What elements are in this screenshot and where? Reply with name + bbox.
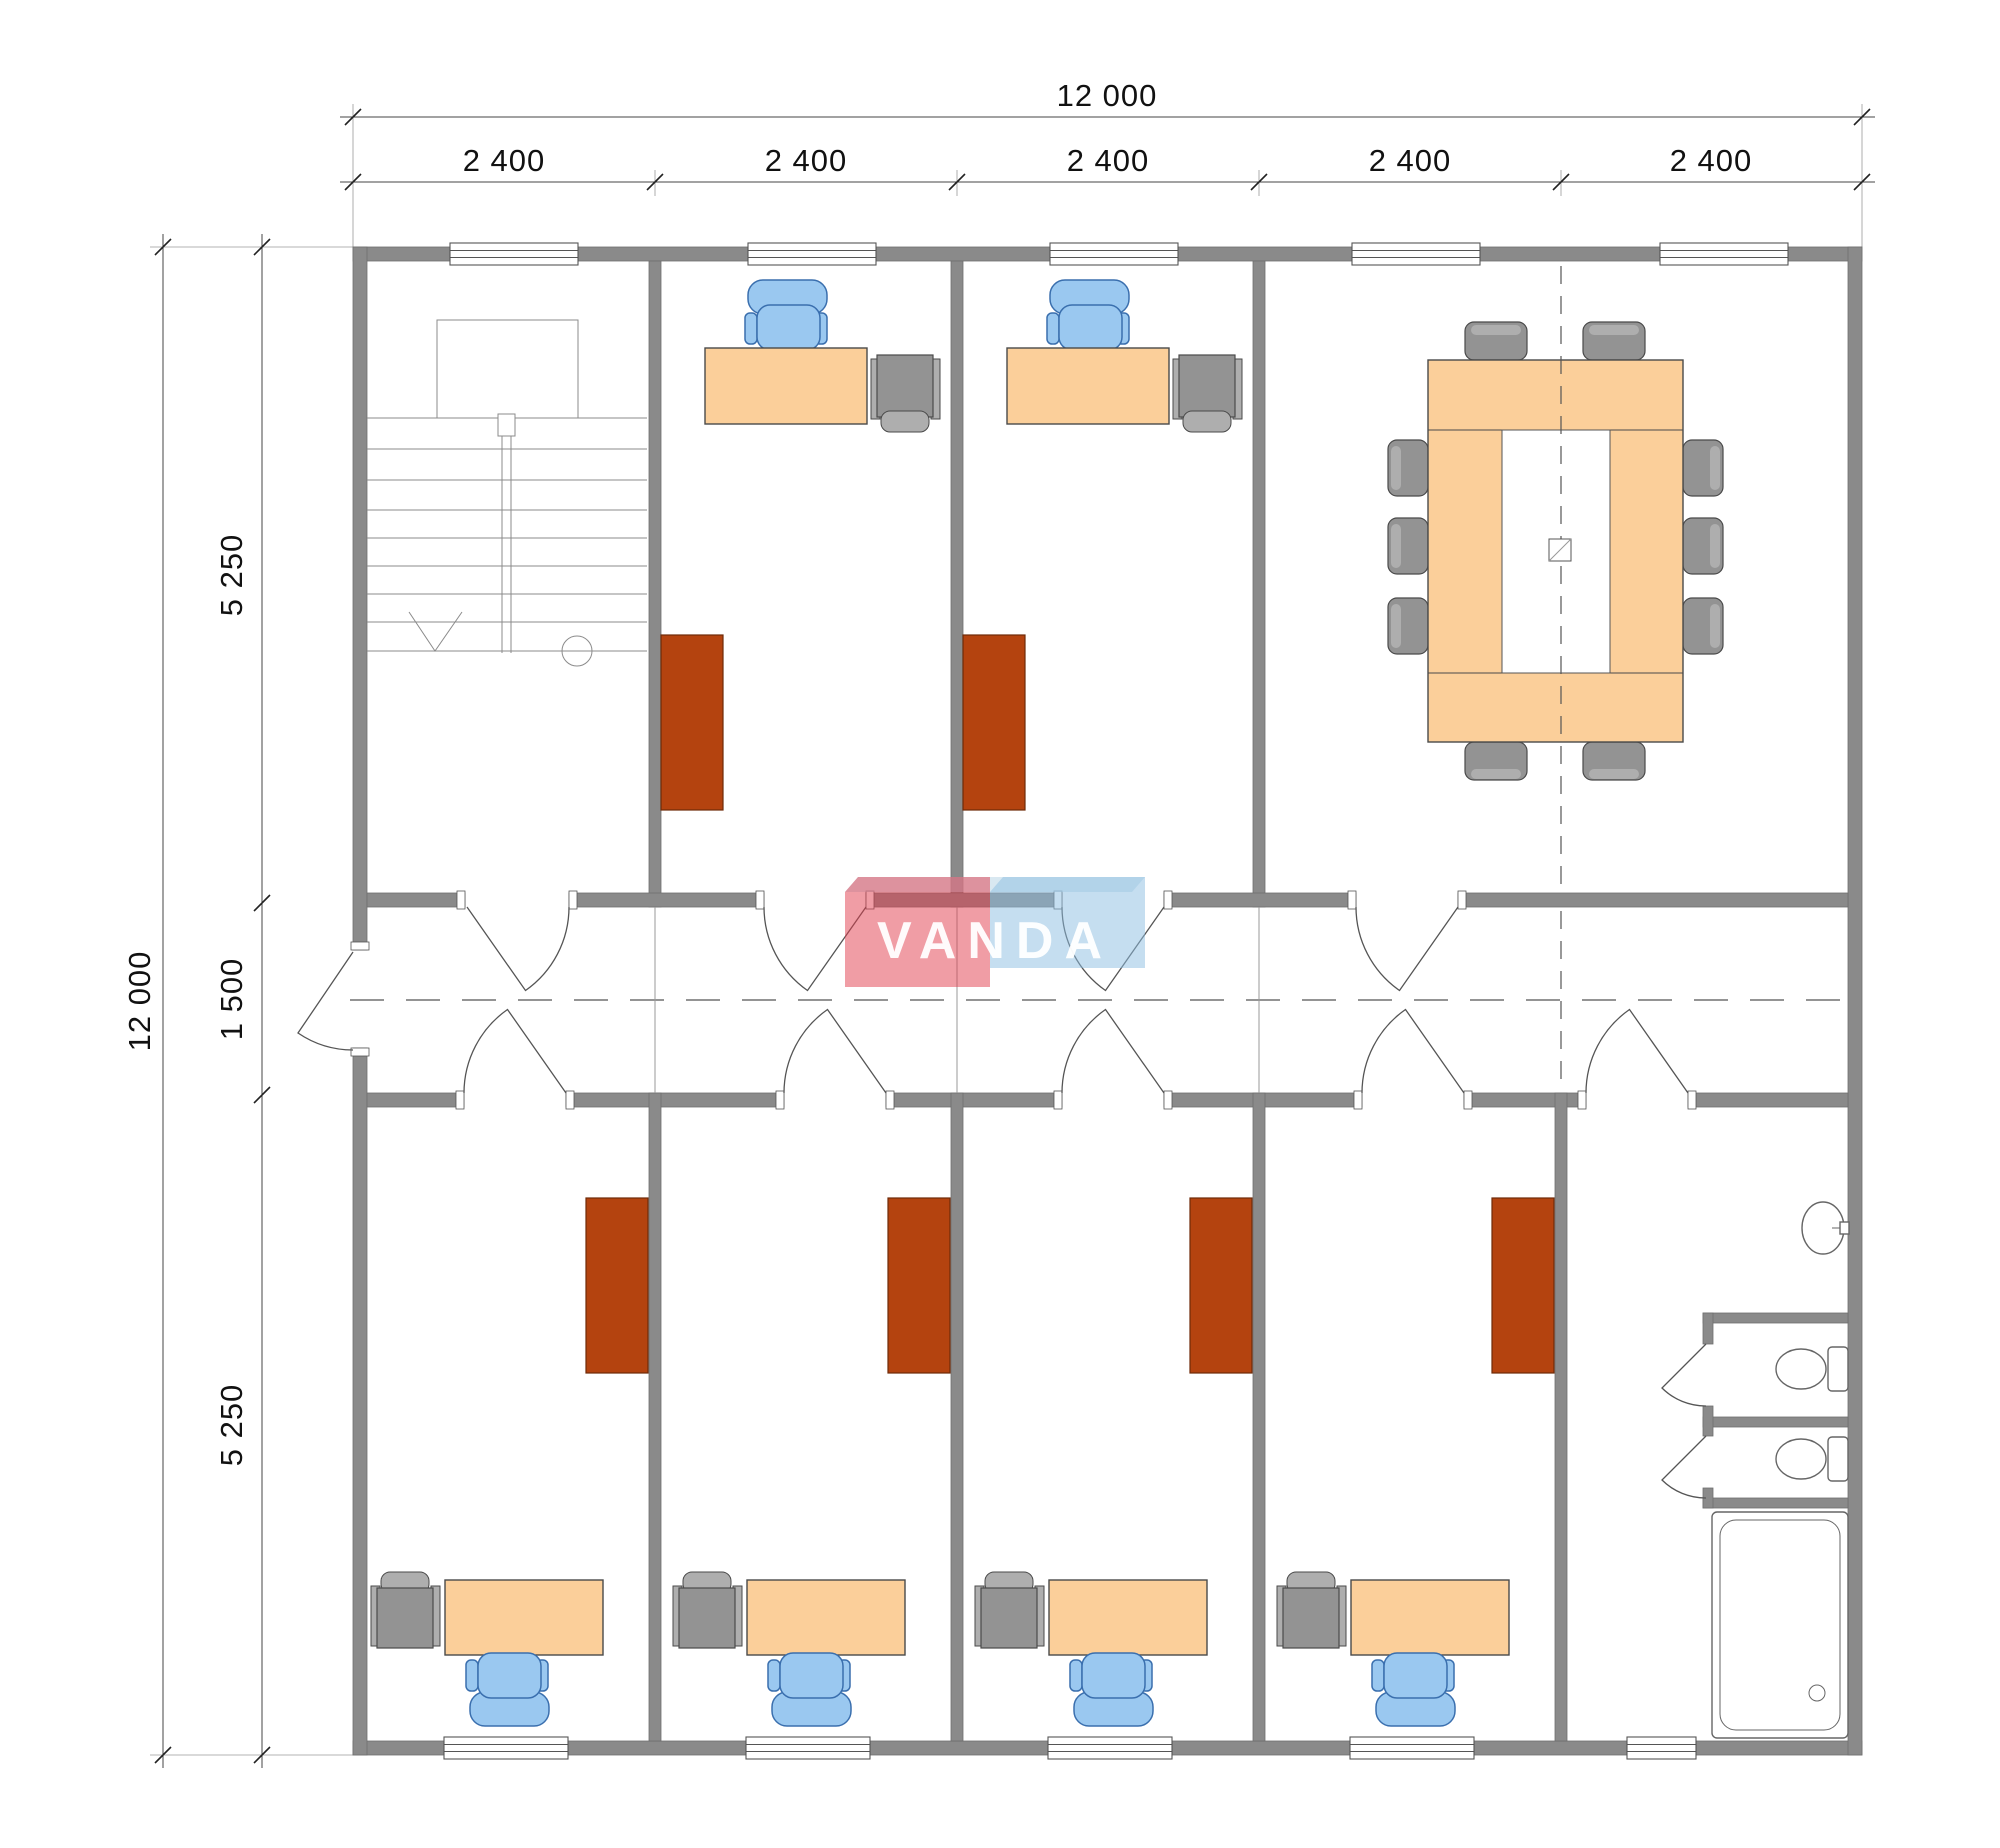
cabinet (963, 635, 1025, 810)
window-top-5 (1660, 243, 1788, 265)
door-office-bottom-4 (1354, 1010, 1472, 1110)
door-wc-stall-1 (1662, 1344, 1706, 1406)
floor-plan-page: 12 000 2 400 2 400 2 400 2 400 2 400 12 … (0, 0, 2000, 1848)
window-bottom-3 (1048, 1737, 1172, 1759)
dim-bay-1: 2 400 (463, 143, 546, 178)
stair-newel (498, 414, 515, 436)
shower-tray (1712, 1512, 1848, 1738)
toilet-2 (1776, 1437, 1848, 1481)
dim-bay-4: 2 400 (1369, 143, 1452, 178)
cabinet (888, 1198, 950, 1373)
workstation (371, 1572, 603, 1726)
window-top-1 (450, 243, 578, 265)
room-office-bottom-2 (673, 1198, 950, 1726)
room-office-top-1 (661, 280, 940, 810)
room-bathroom (1712, 1202, 1849, 1738)
cabinet (586, 1198, 648, 1373)
room-office-top-2 (963, 280, 1242, 810)
dim-total-width: 12 000 (1057, 78, 1158, 113)
entrance-door (298, 942, 369, 1056)
doors (298, 891, 1706, 1498)
workstation (975, 1572, 1207, 1726)
room-meeting (1388, 266, 1723, 888)
door-bathroom (1578, 1010, 1696, 1110)
cabinet (661, 635, 723, 810)
dim-bay-2: 2 400 (765, 143, 848, 178)
window-top-4 (1352, 243, 1480, 265)
window-bottom-4 (1350, 1737, 1474, 1759)
workstation (673, 1572, 905, 1726)
dim-seg-lower: 5 250 (214, 1384, 249, 1467)
dim-seg-upper: 5 250 (214, 534, 249, 617)
door-office-bottom-1 (456, 1010, 574, 1110)
dim-seg-corridor: 1 500 (214, 958, 249, 1041)
window-bottom-2 (746, 1737, 870, 1759)
logo-text: VANDA (877, 912, 1113, 970)
room-office-bottom-3 (975, 1198, 1252, 1726)
door-meeting-room (1348, 891, 1466, 991)
door-office-bottom-2 (776, 1010, 894, 1110)
dimension-left: 12 000 5 250 1 500 5 250 (122, 234, 353, 1768)
dim-total-height: 12 000 (122, 951, 157, 1052)
dimension-top: 12 000 2 400 2 400 2 400 2 400 2 400 (340, 78, 1875, 247)
column-symbol (1549, 539, 1571, 561)
sink (1802, 1202, 1849, 1254)
logo-watermark: VANDA (845, 877, 1145, 987)
cabinet (1190, 1198, 1252, 1373)
room-office-bottom-1 (371, 1198, 648, 1726)
room-office-bottom-4 (1277, 1198, 1554, 1726)
door-office-bottom-3 (1054, 1010, 1172, 1110)
dim-bay-5: 2 400 (1670, 143, 1753, 178)
cabinet (1492, 1198, 1554, 1373)
window-top-2 (748, 243, 876, 265)
workstation (1007, 280, 1242, 432)
floor-plan-drawing: 12 000 2 400 2 400 2 400 2 400 2 400 12 … (0, 0, 2000, 1848)
stair-direction-arrow (409, 612, 462, 651)
door-wc-stall-2 (1662, 1436, 1706, 1498)
door-stairwell (457, 891, 577, 991)
room-stairwell (367, 320, 647, 666)
window-top-3 (1050, 243, 1178, 265)
dim-bay-3: 2 400 (1067, 143, 1150, 178)
workstation (705, 280, 940, 432)
window-bottom-wc (1627, 1737, 1696, 1759)
workstation (1277, 1572, 1509, 1726)
window-bottom-1 (444, 1737, 568, 1759)
toilet-1 (1776, 1347, 1848, 1391)
